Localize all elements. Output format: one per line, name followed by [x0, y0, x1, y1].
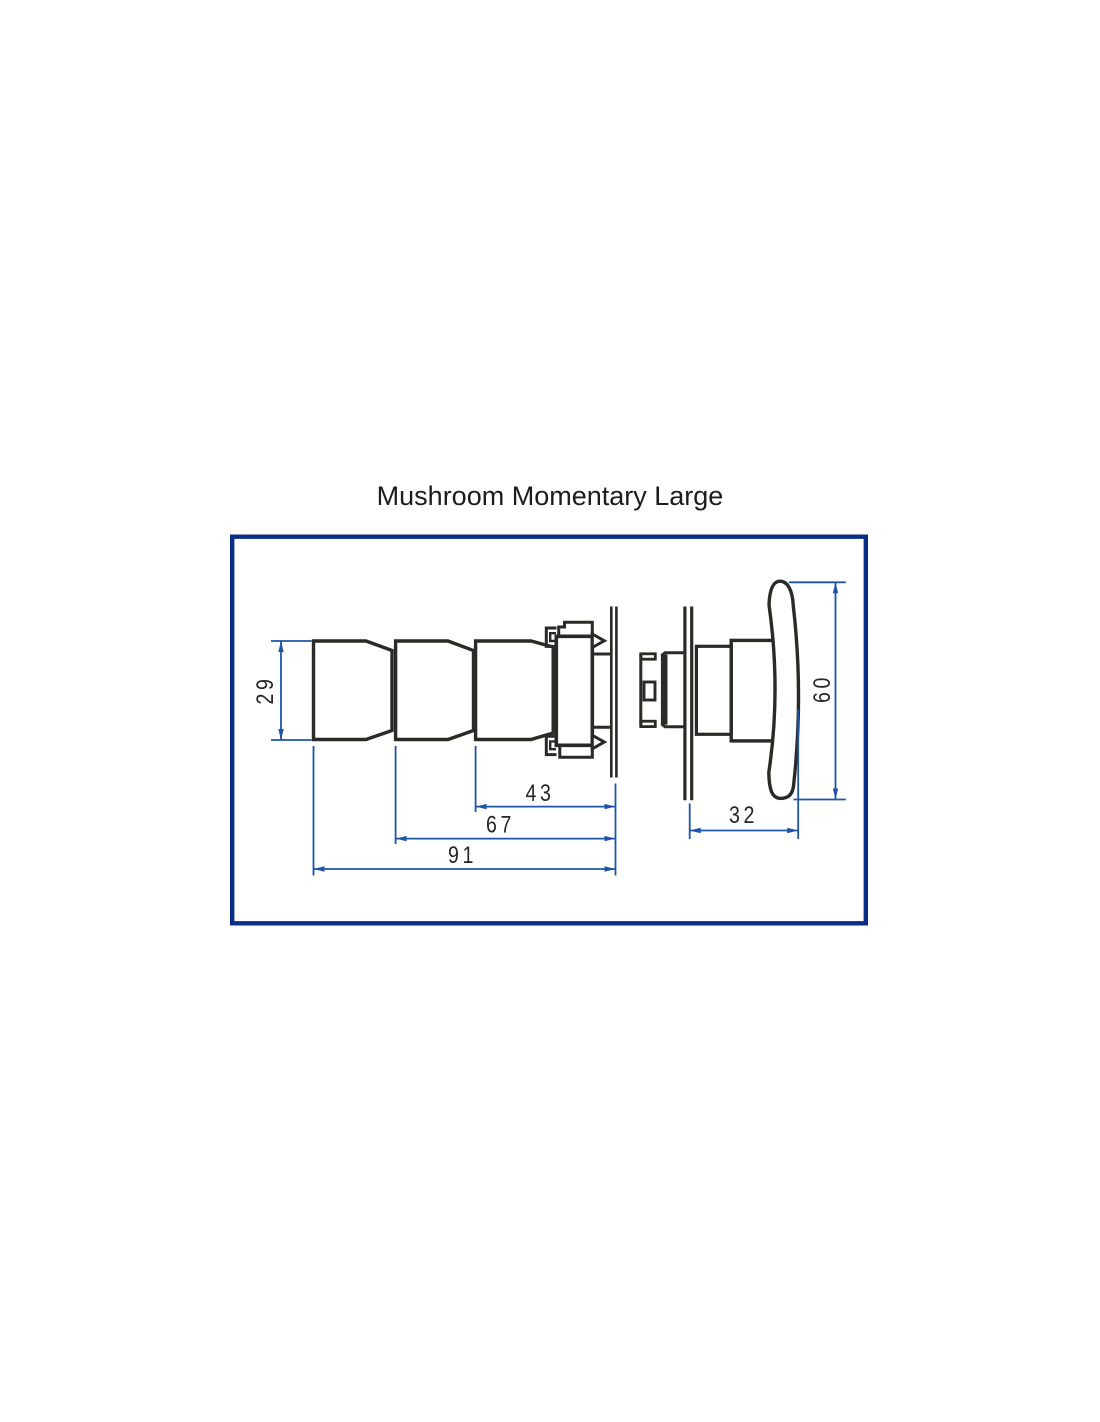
svg-text:91: 91	[448, 841, 477, 869]
svg-text:67: 67	[486, 810, 515, 838]
svg-text:32: 32	[729, 801, 758, 829]
svg-text:43: 43	[526, 779, 555, 807]
svg-text:29: 29	[251, 676, 279, 705]
svg-text:60: 60	[808, 674, 836, 703]
svg-text:Mushroom Momentary Large: Mushroom Momentary Large	[377, 481, 724, 511]
